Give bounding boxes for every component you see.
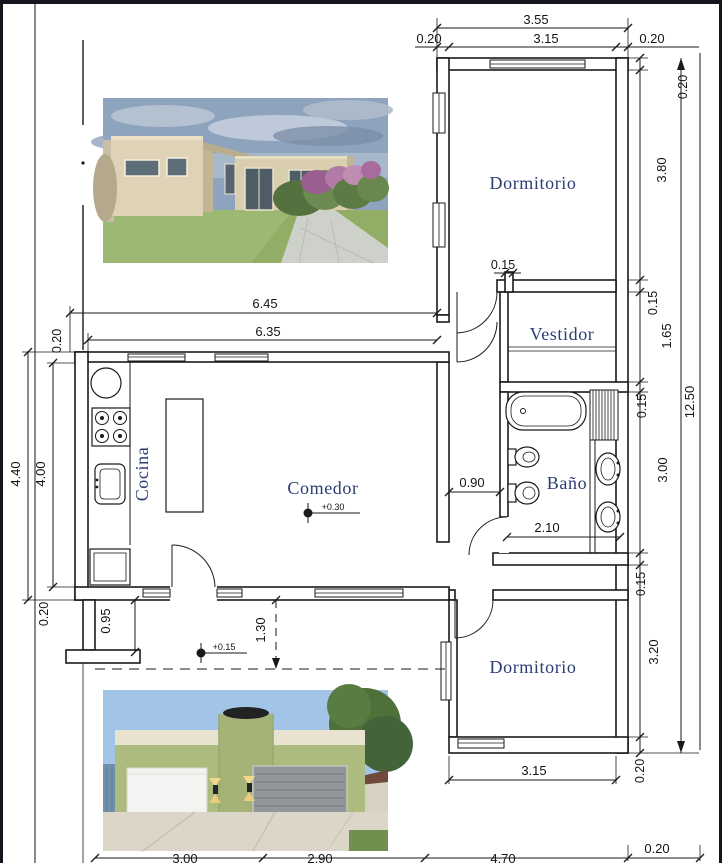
dim-bano-width: 2.10: [534, 520, 559, 535]
dim-top-overall: 3.55: [523, 12, 548, 27]
sink-basin-icon: [596, 453, 620, 485]
level-label-galeria: +0.15: [213, 642, 236, 652]
kitchen-sink-icon: [95, 464, 125, 504]
dim-porch-right: 1.30: [253, 617, 268, 642]
photo-house-front: [103, 684, 413, 851]
room-label-vestidor: Vestidor: [530, 324, 595, 344]
doors: [172, 292, 507, 638]
dim-vestidor-niche: 0.15: [491, 258, 515, 272]
dim-left-outer: 4.40: [8, 461, 23, 486]
sink-basin-icon-2: [596, 502, 620, 532]
dim-bottom-seg2: 2.90: [307, 851, 332, 863]
dim-bottom-seg4: 0.20: [644, 841, 669, 856]
dim-top-wall-right: 0.20: [639, 31, 664, 46]
dim-right-wall-a: 0.15: [646, 291, 660, 315]
dim-kitchen-overall: 6.45: [252, 296, 277, 311]
photo-3d-render-rear: [91, 98, 393, 263]
dim-porch-left: 0.95: [98, 608, 113, 633]
floor-plan-drawing: Dormitorio Vestidor Baño Comedor Cocina …: [0, 0, 722, 863]
dim-bottom-seg3: 4.70: [490, 851, 515, 863]
dim-right-wall-top: 0.20: [676, 75, 690, 99]
dim-kitchen-inner: 6.35: [255, 324, 280, 339]
dim-left-wall-top: 0.20: [50, 329, 64, 353]
dim-top-inner: 3.15: [533, 31, 558, 46]
dim-right-wall-d: 0.20: [633, 759, 647, 783]
dim-left-inner: 4.00: [33, 461, 48, 486]
dim-right-dorm-bottom: 3.20: [646, 639, 661, 664]
floor-plan-sheet: Dormitorio Vestidor Baño Comedor Cocina …: [0, 0, 722, 863]
dim-right-total: 12.50: [682, 386, 697, 419]
dim-top-wall-left: 0.20: [416, 31, 441, 46]
dim-right-bano: 3.00: [655, 457, 670, 482]
shower-hatch: [590, 390, 618, 440]
bathroom-fixtures: [506, 347, 620, 553]
bidet-icon: [508, 447, 539, 467]
dim-right-wall-b: 0.15: [635, 394, 649, 418]
dim-right-dorm-top: 3.80: [654, 157, 669, 182]
dim-dorm-bottom-width: 3.15: [521, 763, 546, 778]
level-label-comedor: +0.30: [322, 502, 345, 512]
kitchen-sink-round-icon: [91, 368, 121, 398]
dim-right-vestidor: 1.65: [659, 323, 674, 348]
room-label-cocina: Cocina: [132, 447, 152, 502]
stove-icon: [92, 408, 130, 446]
fridge-icon: [90, 549, 130, 585]
dim-hall-width: 0.90: [459, 475, 484, 490]
toilet-icon: [508, 482, 539, 504]
room-label-bano: Baño: [547, 473, 587, 493]
room-label-dormitorio-top: Dormitorio: [490, 173, 577, 193]
kitchen-island: [166, 399, 203, 512]
dim-left-wall-bottom: 0.20: [37, 602, 51, 626]
room-label-comedor: Comedor: [287, 478, 358, 498]
dim-right-wall-c: 0.15: [634, 572, 648, 596]
bathtub-icon: [506, 392, 586, 430]
room-label-dormitorio-bottom: Dormitorio: [490, 657, 577, 677]
dim-bottom-seg1: 3.00: [172, 851, 197, 863]
